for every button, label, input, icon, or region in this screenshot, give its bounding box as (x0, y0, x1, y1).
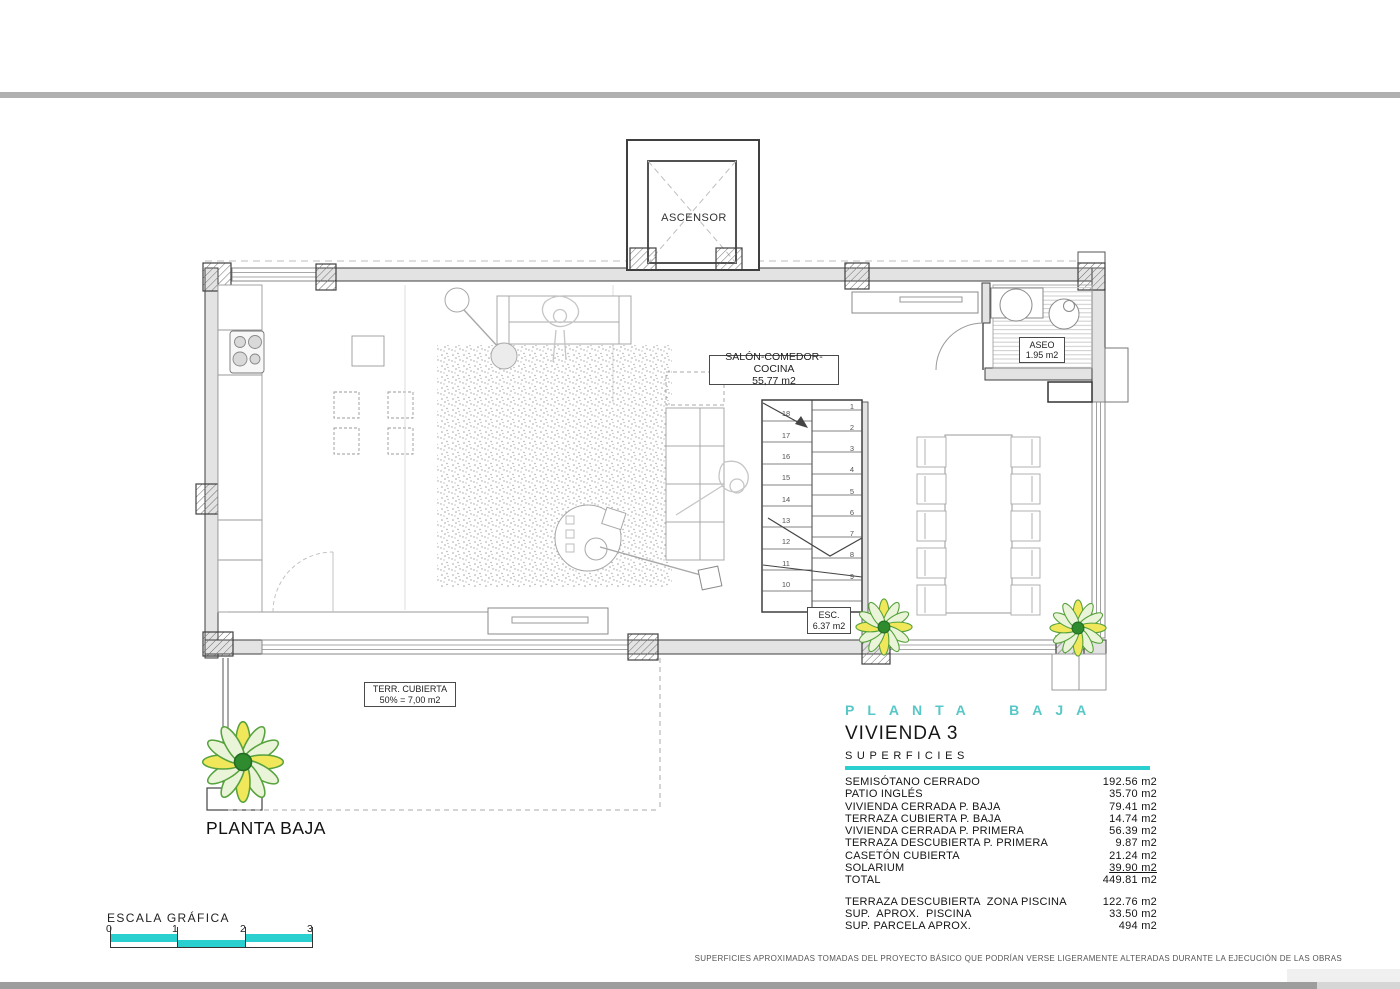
door-swing-arc (936, 323, 983, 370)
stairs-label-line1: ESC. (808, 610, 850, 620)
svg-text:5: 5 (850, 487, 854, 496)
table-row-total: TOTAL449.81 m2 (845, 874, 1157, 886)
svg-text:16: 16 (782, 452, 790, 461)
bottom-divider-bar-light (1317, 982, 1400, 989)
svg-text:4: 4 (850, 465, 854, 474)
svg-text:1: 1 (850, 402, 854, 411)
scale-tick (245, 927, 246, 948)
kitchen-table (352, 336, 384, 366)
elevator-label: ASCENSOR (648, 212, 740, 224)
scale-bar-segment (110, 934, 177, 942)
svg-text:15: 15 (782, 473, 790, 482)
table-row: VIVIENDA CERRADA P. PRIMERA56.39 m2 (845, 825, 1157, 837)
bottom-divider-bar (0, 982, 1317, 989)
stairs-label-box: ESC. 6.37 m2 (807, 607, 851, 634)
floor-plan-drawing: 18 17 16 15 14 13 12 11 10 1 2 3 4 5 6 7… (0, 0, 1400, 989)
salon-label-line1: SALÓN-COMEDOR-COCINA (710, 352, 838, 376)
aseo-label-line2: 1.95 m2 (1020, 350, 1064, 360)
table-row: TERRAZA DESCUBIERTA ZONA PISCINA122.76 m… (845, 896, 1157, 908)
floor-plan-caption: PLANTA BAJA (206, 818, 326, 839)
svg-text:9: 9 (850, 572, 854, 581)
svg-text:6: 6 (850, 508, 854, 517)
scale-tick (110, 927, 111, 948)
svg-text:11: 11 (782, 559, 790, 568)
svg-text:12: 12 (782, 537, 790, 546)
washbasin (1000, 289, 1032, 321)
table-row: SUP. PARCELA APROX.494 m2 (845, 920, 1157, 932)
rug (437, 345, 672, 587)
graphic-scale-title: ESCALA GRÁFICA (107, 911, 230, 925)
svg-text:18: 18 (782, 409, 790, 418)
surfaces-table-extra: TERRAZA DESCUBIERTA ZONA PISCINA122.76 m… (845, 896, 1157, 933)
table-row: VIVIENDA CERRADA P. BAJA79.41 m2 (845, 801, 1157, 813)
table-row: SEMISÓTANO CERRADO192.56 m2 (845, 776, 1157, 788)
living-room (437, 288, 978, 634)
table-row: TERRAZA CUBIERTA P. BAJA14.74 m2 (845, 813, 1157, 825)
table-row: PATIO INGLÉS35.70 m2 (845, 788, 1157, 800)
salon-label-line2: 55,77 m2 (710, 376, 838, 388)
dining-table (945, 435, 1012, 613)
scale-bar-segment (245, 934, 313, 942)
surfaces-panel: PLANTA BAJA VIVIENDA 3 SUPERFICIES SEMIS… (845, 702, 1157, 933)
elevator-shaft (627, 140, 759, 270)
svg-text:10: 10 (782, 580, 790, 589)
svg-text:14: 14 (782, 495, 790, 504)
tv-sideboard (488, 608, 608, 634)
bottom-bar-step (1287, 969, 1400, 982)
terrace-label-line2: 50% = 7,00 m2 (365, 695, 455, 705)
svg-text:13: 13 (782, 516, 790, 525)
window-bench (852, 292, 978, 313)
panel-floor-title: PLANTA BAJA (845, 702, 1157, 718)
svg-text:17: 17 (782, 431, 790, 440)
accent-divider (845, 766, 1150, 770)
svg-text:2: 2 (850, 423, 854, 432)
aseo-label-box: ASEO 1.95 m2 (1019, 337, 1065, 363)
svg-text:7: 7 (850, 529, 854, 538)
table-row: TERRAZA DESCUBIERTA P. PRIMERA9.87 m2 (845, 837, 1157, 849)
dining-area (917, 435, 1040, 615)
kitchen-chairs (334, 392, 413, 454)
table-row: CASETÓN CUBIERTA21.24 m2 (845, 850, 1157, 862)
aseo-label-line1: ASEO (1020, 340, 1064, 350)
surfaces-table: SEMISÓTANO CERRADO192.56 m2 PATIO INGLÉS… (845, 776, 1157, 887)
surfaces-section-title: SUPERFICIES (845, 750, 1157, 762)
stove (230, 331, 264, 373)
sofa-right (666, 372, 724, 560)
page: 18 17 16 15 14 13 12 11 10 1 2 3 4 5 6 7… (0, 0, 1400, 989)
staircase: 18 17 16 15 14 13 12 11 10 1 2 3 4 5 6 7… (762, 400, 862, 612)
unit-title: VIVIENDA 3 (845, 723, 1157, 745)
terrace-label-box: TERR. CUBIERTA 50% = 7,00 m2 (364, 682, 456, 707)
footer-disclaimer: SUPERFICIES APROXIMADAS TOMADAS DEL PROY… (695, 954, 1342, 963)
scale-tick (177, 927, 178, 948)
scale-baseline (110, 947, 313, 948)
scale-tick (312, 927, 313, 948)
table-row: SUP. APROX. PISCINA33.50 m2 (845, 908, 1157, 920)
terrace-label-line1: TERR. CUBIERTA (365, 684, 455, 694)
salon-label-box: SALÓN-COMEDOR-COCINA 55,77 m2 (709, 355, 839, 385)
door-swing-arc (273, 552, 333, 612)
table-row: SOLARIUM39.90 m2 (845, 862, 1157, 874)
stairs-label-line2: 6.37 m2 (808, 621, 850, 631)
svg-text:3: 3 (850, 444, 854, 453)
svg-text:8: 8 (850, 550, 854, 559)
